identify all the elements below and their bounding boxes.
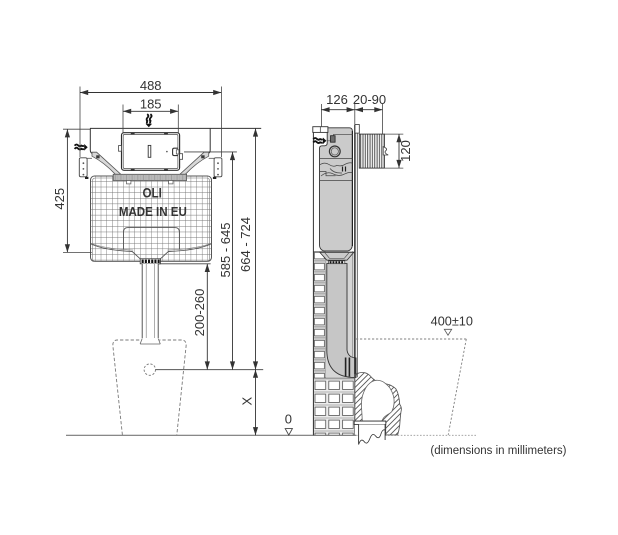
svg-text:400±10: 400±10 <box>431 315 473 329</box>
svg-text:120: 120 <box>398 140 413 162</box>
svg-text:425: 425 <box>52 188 67 210</box>
svg-text:OLI: OLI <box>143 186 162 201</box>
svg-text:X: X <box>240 397 255 406</box>
svg-text:126: 126 <box>326 92 348 107</box>
svg-text:MADE IN EU: MADE IN EU <box>119 204 187 219</box>
svg-text:200-260: 200-260 <box>192 289 207 337</box>
svg-text:585 - 645: 585 - 645 <box>218 223 233 278</box>
svg-text:664 - 724: 664 - 724 <box>238 217 253 272</box>
svg-text:(dimensions in millimeters): (dimensions in millimeters) <box>430 445 566 457</box>
svg-text:488: 488 <box>140 78 162 93</box>
svg-text:20-90: 20-90 <box>353 92 386 107</box>
svg-text:0: 0 <box>285 411 292 426</box>
svg-text:185: 185 <box>140 97 162 112</box>
